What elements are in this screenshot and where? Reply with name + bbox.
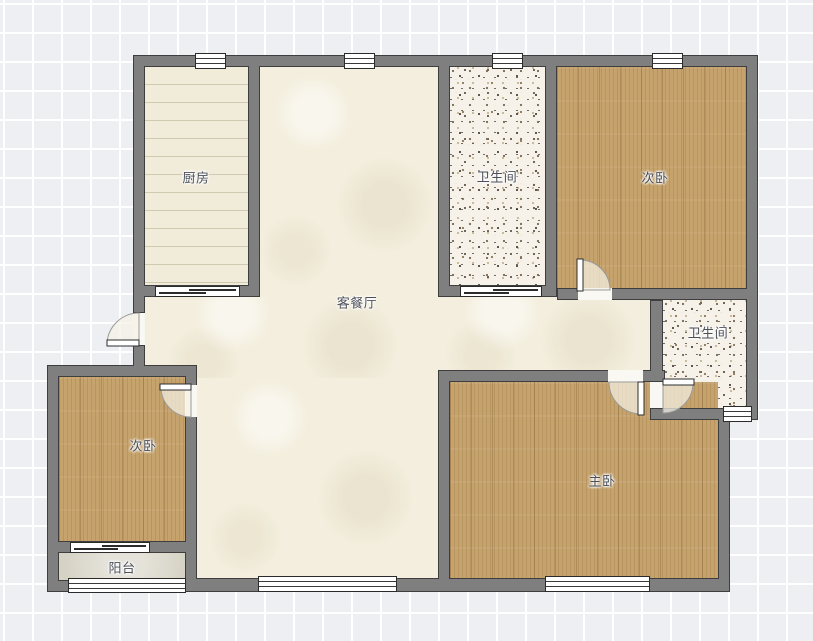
window: [258, 576, 397, 592]
room-label-bedroom-top-right: 次卧: [641, 168, 668, 187]
room-label-kitchen: 厨房: [182, 168, 209, 187]
room-label-bathroom-top: 卫生间: [477, 167, 518, 186]
wall-segment: [546, 61, 556, 296]
wall-segment: [439, 371, 449, 591]
window: [723, 406, 752, 422]
window: [68, 578, 186, 593]
window: [545, 576, 650, 592]
wall-segment: [48, 366, 58, 591]
room-label-living-dining: 客餐厅: [337, 293, 378, 312]
window: [195, 53, 226, 69]
wall-segment: [719, 409, 729, 591]
window: [492, 53, 523, 69]
door-opening: [133, 313, 145, 345]
sliding-door: [460, 286, 542, 297]
room-living-dining: [197, 378, 438, 578]
room-label-master-bedroom: 主卧: [588, 471, 615, 490]
door-opening: [185, 385, 197, 417]
room-bedroom-left: [59, 377, 185, 541]
wall-segment: [651, 301, 662, 381]
door-opening: [650, 382, 663, 408]
room-label-bathroom-right: 卫生间: [688, 323, 729, 342]
floor-plan-canvas: 厨房卫生间次卧客餐厅卫生间次卧主卧阳台: [0, 0, 813, 641]
room-hallway: [438, 297, 653, 370]
wall-segment: [439, 61, 449, 296]
door-opening: [578, 288, 612, 300]
wall-segment: [249, 61, 259, 296]
room-living-dining: [260, 67, 438, 297]
door-opening: [608, 370, 643, 382]
window: [344, 53, 375, 69]
wall-segment: [747, 56, 757, 419]
room-label-bedroom-left: 次卧: [129, 436, 156, 455]
sliding-door: [155, 286, 240, 297]
wall-segment: [134, 56, 144, 312]
wall-segment: [48, 366, 196, 376]
sliding-door: [70, 542, 150, 553]
room-label-balcony: 阳台: [108, 558, 135, 577]
window: [652, 53, 683, 69]
